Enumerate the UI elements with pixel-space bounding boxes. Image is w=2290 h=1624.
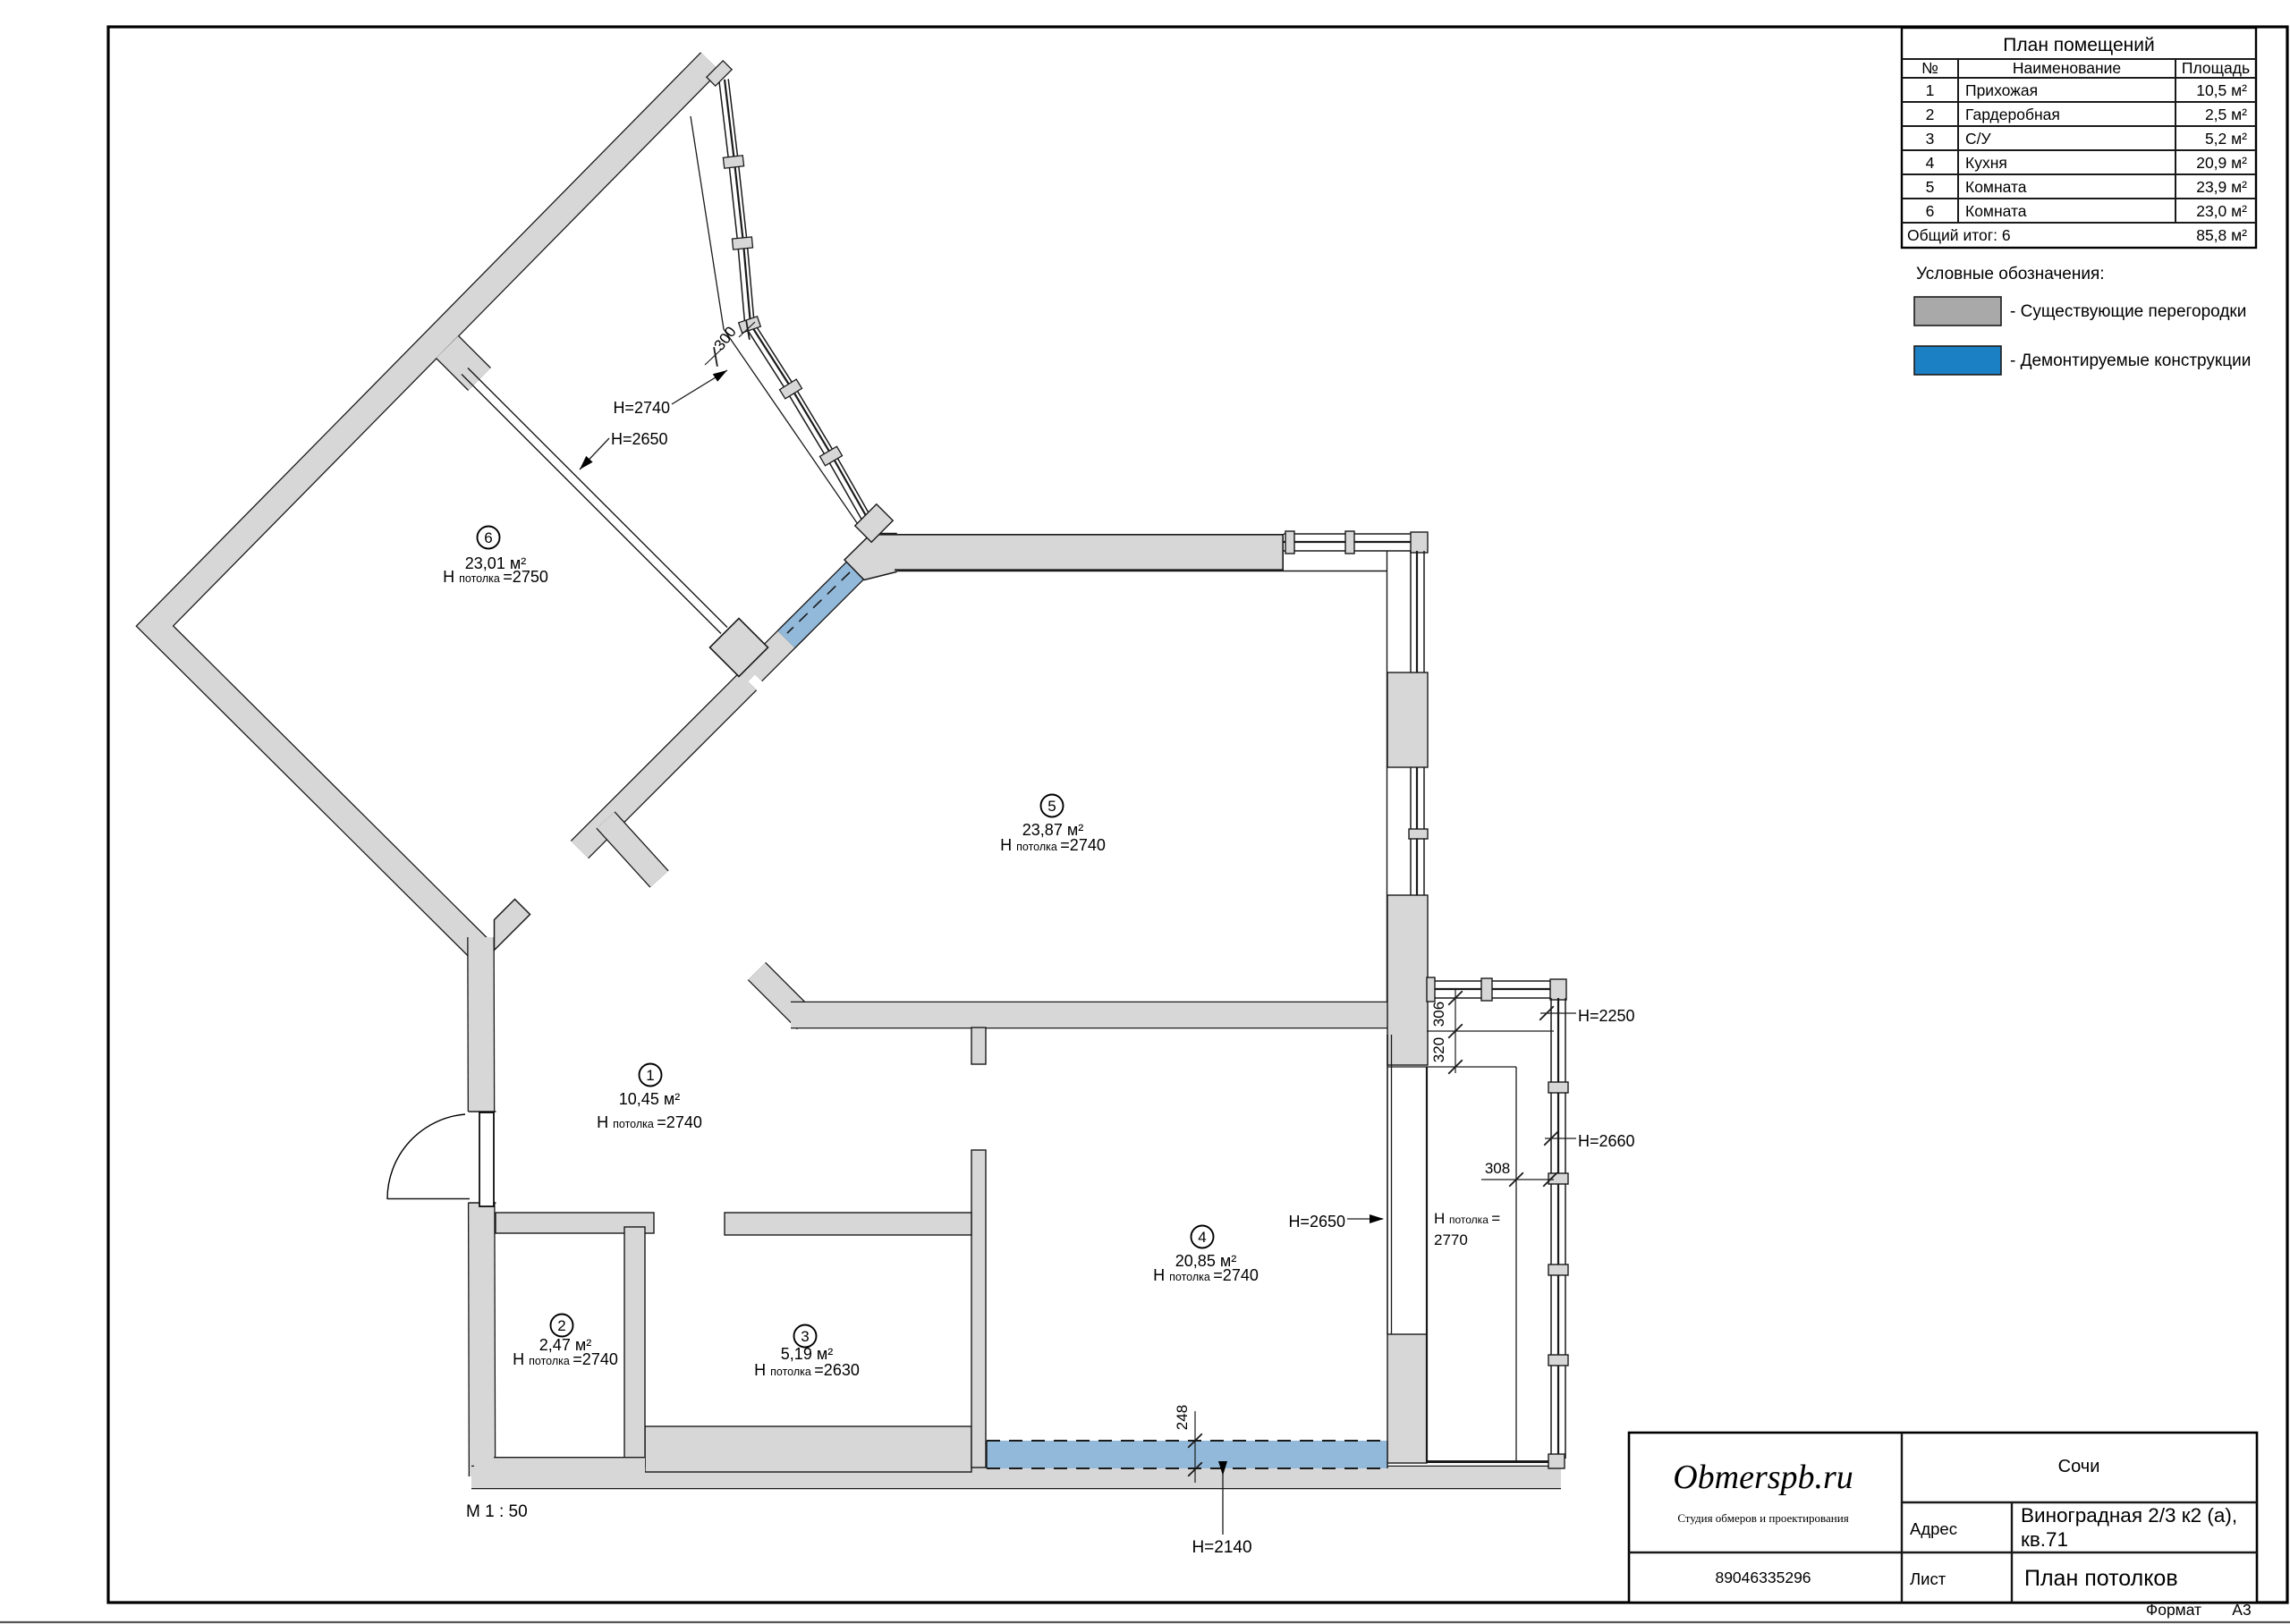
svg-text:23,0 м²: 23,0 м² <box>2196 202 2247 220</box>
svg-text:кв.71: кв.71 <box>2021 1528 2068 1551</box>
svg-text:Площадь: Площадь <box>2182 59 2250 77</box>
svg-text:План помещений: План помещений <box>2003 35 2154 55</box>
svg-text:H=2650: H=2650 <box>1288 1213 1345 1231</box>
svg-text:20,9 м²: 20,9 м² <box>2196 154 2247 172</box>
svg-text:Прихожая: Прихожая <box>1965 81 2038 99</box>
svg-text:5,2 м²: 5,2 м² <box>2205 130 2247 148</box>
svg-text:Obmerspb.ru: Obmerspb.ru <box>1673 1459 1853 1496</box>
svg-text:Гардеробная: Гардеробная <box>1965 106 2060 123</box>
svg-text:2: 2 <box>1926 106 1935 123</box>
svg-text:85,8 м²: 85,8 м² <box>2196 226 2247 244</box>
svg-text:Адрес: Адрес <box>1910 1519 1957 1538</box>
svg-text:Лист: Лист <box>1910 1569 1946 1588</box>
svg-text:Кухня: Кухня <box>1965 154 2007 172</box>
svg-text:4: 4 <box>1198 1229 1206 1246</box>
svg-text:2: 2 <box>557 1317 565 1334</box>
svg-text:- Существующие перегородки: - Существующие перегородки <box>2010 302 2246 321</box>
svg-text:Студия обмеров и проектировани: Студия обмеров и проектирования <box>1677 1511 1848 1525</box>
svg-text:Виноградная 2/3 к2 (а),: Виноградная 2/3 к2 (а), <box>2021 1504 2237 1527</box>
svg-text:3: 3 <box>801 1328 809 1345</box>
svg-text:5,19 м²: 5,19 м² <box>781 1345 833 1363</box>
svg-text:М 1 : 50: М 1 : 50 <box>466 1502 528 1521</box>
svg-text:- Демонтируемые конструкции: - Демонтируемые конструкции <box>2010 351 2251 370</box>
svg-text:3: 3 <box>1926 130 1935 148</box>
svg-text:H=2740: H=2740 <box>613 399 670 417</box>
svg-text:320: 320 <box>1430 1037 1447 1062</box>
svg-text:306: 306 <box>1430 1002 1447 1027</box>
svg-text:Наименование: Наименование <box>2013 59 2121 77</box>
svg-text:6: 6 <box>484 529 492 546</box>
svg-text:1: 1 <box>1926 81 1935 99</box>
svg-text:H=2140: H=2140 <box>1192 1538 1251 1557</box>
svg-text:6: 6 <box>1926 202 1935 220</box>
svg-text:Общий итог: 6: Общий итог: 6 <box>1907 226 2011 244</box>
svg-text:Формат: Формат <box>2146 1601 2201 1619</box>
svg-text:H=2660: H=2660 <box>1578 1132 1635 1150</box>
svg-text:248: 248 <box>1174 1405 1191 1430</box>
svg-text:308: 308 <box>1485 1160 1510 1177</box>
svg-text:89046335296: 89046335296 <box>1715 1569 1811 1586</box>
svg-text:5: 5 <box>1926 178 1935 196</box>
svg-text:4: 4 <box>1926 154 1935 172</box>
svg-text:Комната: Комната <box>1965 178 2027 196</box>
svg-text:5: 5 <box>1047 798 1056 815</box>
svg-text:2,5 м²: 2,5 м² <box>2205 106 2247 123</box>
svg-text:План потолков: План потолков <box>2024 1566 2178 1591</box>
svg-text:10,45 м²: 10,45 м² <box>619 1090 680 1108</box>
svg-text:H=2650: H=2650 <box>611 430 668 448</box>
svg-text:23,9 м²: 23,9 м² <box>2196 178 2247 196</box>
svg-text:Сочи: Сочи <box>2058 1457 2100 1476</box>
svg-text:Условные обозначения:: Условные обозначения: <box>1916 265 2105 283</box>
svg-text:1: 1 <box>646 1067 654 1084</box>
svg-text:10,5 м²: 10,5 м² <box>2196 81 2247 99</box>
svg-text:2770: 2770 <box>1434 1231 1468 1248</box>
svg-text:Комната: Комната <box>1965 202 2027 220</box>
svg-text:H=2250: H=2250 <box>1578 1007 1635 1025</box>
svg-text:С/У: С/У <box>1965 130 1992 148</box>
svg-text:А3: А3 <box>2232 1601 2251 1619</box>
svg-text:№: № <box>1921 59 1938 77</box>
